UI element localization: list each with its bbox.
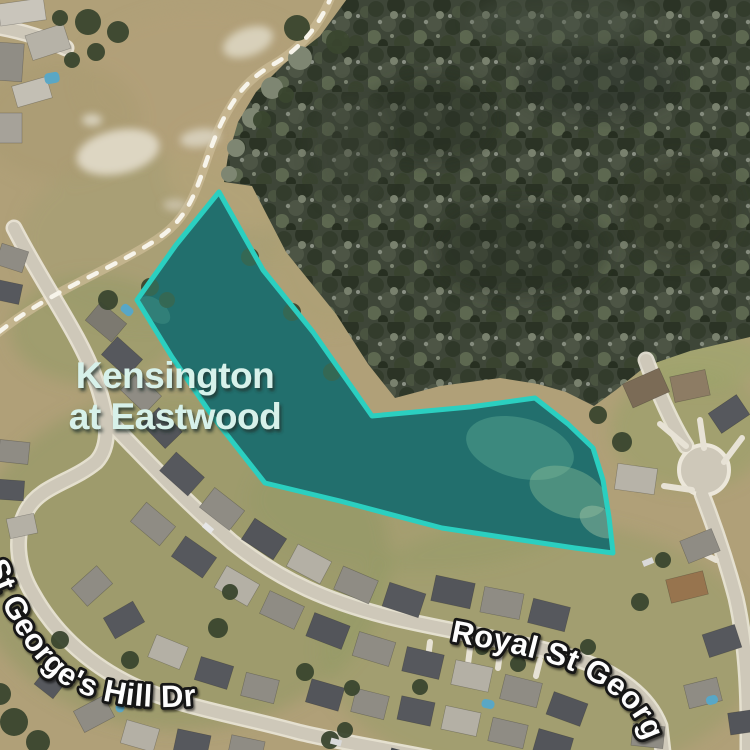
place-label: Kensington at Eastwood [69, 355, 281, 437]
place-label-line2: at Eastwood [69, 396, 281, 437]
satellite-map[interactable]: Royal St George Dr St George's Hill Dr K… [0, 0, 750, 750]
place-label-line1: Kensington [76, 355, 274, 396]
map-viewport[interactable]: Royal St George Dr St George's Hill Dr K… [0, 0, 750, 750]
